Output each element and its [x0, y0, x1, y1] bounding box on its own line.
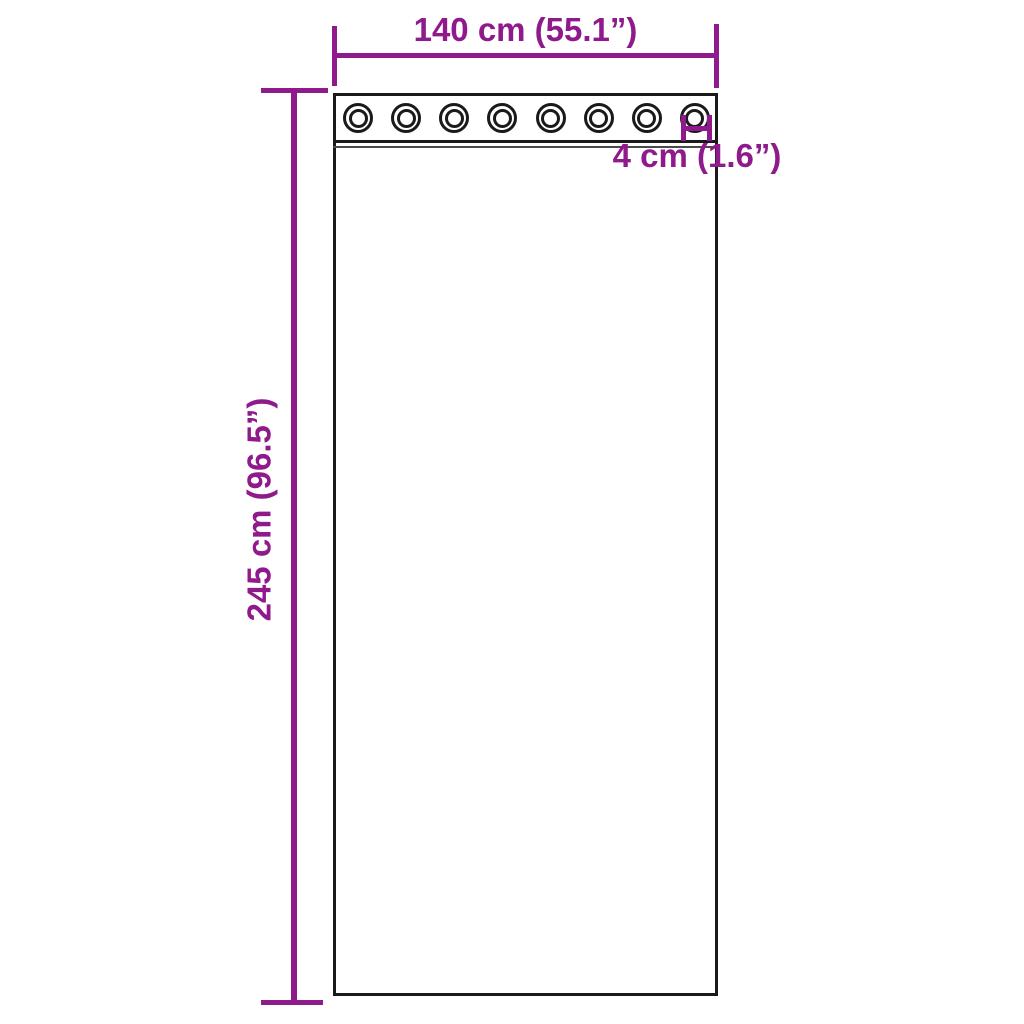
grommet-hole [445, 109, 464, 128]
height-dimension-line [291, 90, 297, 1005]
grommet-icon [536, 103, 566, 133]
height-dimension-cap-top [261, 88, 328, 93]
grommet-hole [541, 109, 560, 128]
width-dimension-line [333, 53, 718, 58]
grommet-hole [493, 109, 512, 128]
grommet-icon [343, 103, 373, 133]
height-dimension-label: 245 cm (96.5”) [243, 360, 276, 660]
grommet-hole [589, 109, 608, 128]
height-dimension-cap-bottom [261, 1000, 323, 1005]
grommet-icon [487, 103, 517, 133]
grommet-icon [391, 103, 421, 133]
curtain-outline [333, 93, 718, 996]
grommet-hole [685, 109, 704, 128]
grommet-icon [632, 103, 662, 133]
grommet-dimension-label: 4 cm (1.6”) [597, 139, 797, 172]
grommet-hole [397, 109, 416, 128]
width-dimension-label: 140 cm (55.1”) [333, 13, 718, 46]
grommet-icon [439, 103, 469, 133]
grommet-icon [584, 103, 614, 133]
grommet-dimension-bar [681, 126, 712, 131]
grommet-row [343, 103, 710, 133]
dimension-diagram: 140 cm (55.1”) 245 cm (96.5”) 4 cm (1.6”… [0, 0, 1024, 1024]
grommet-hole [637, 109, 656, 128]
grommet-hole [349, 109, 368, 128]
